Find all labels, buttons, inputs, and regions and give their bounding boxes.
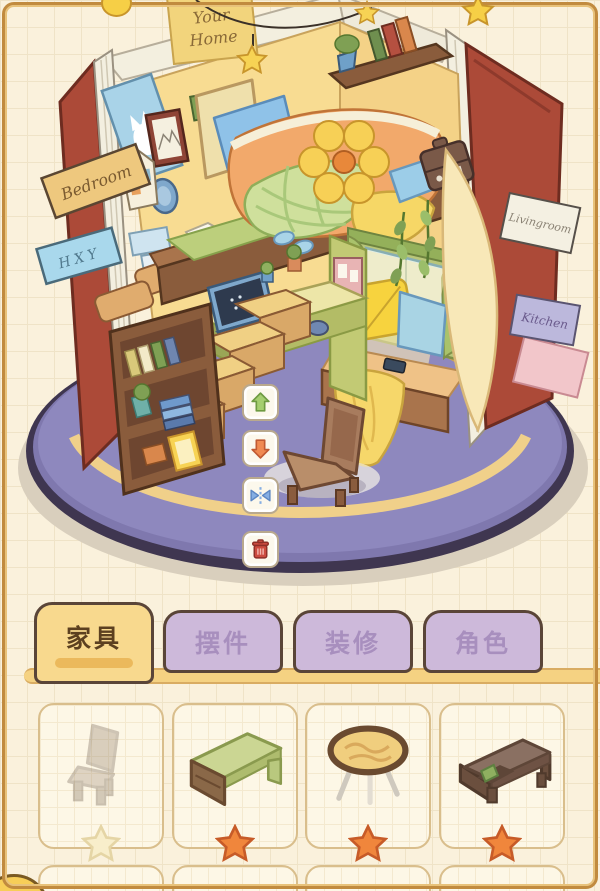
wooden-chair-thumbnail bbox=[40, 713, 162, 819]
tab-character-label: 角色 bbox=[455, 624, 511, 660]
bookshelf bbox=[110, 304, 224, 494]
tab-decoration[interactable]: 装修 bbox=[293, 610, 413, 673]
category-tab-bar: 家具 摆件 装修 角色 bbox=[0, 598, 600, 690]
inventory-card-row2-2[interactable] bbox=[172, 865, 298, 891]
game-screen: Your Home bbox=[0, 0, 600, 891]
round-table-thumbnail bbox=[307, 713, 429, 819]
arrow-up-icon bbox=[248, 390, 273, 415]
tab-active-underline bbox=[55, 658, 133, 668]
inventory-card-row2-4[interactable] bbox=[439, 865, 565, 891]
tab-furniture[interactable]: 家具 bbox=[34, 602, 154, 684]
tv-cabinet-thumbnail bbox=[441, 713, 563, 819]
inventory-card-wooden-chair[interactable] bbox=[38, 703, 164, 849]
raise-button[interactable] bbox=[242, 384, 279, 421]
frame-star-ornament bbox=[460, 0, 496, 28]
picture-frame bbox=[146, 109, 189, 166]
orange-star-badge bbox=[347, 824, 389, 864]
lower-button[interactable] bbox=[242, 430, 279, 467]
pale-star-badge bbox=[80, 824, 122, 864]
flip-button[interactable] bbox=[242, 477, 279, 514]
orange-star-badge bbox=[481, 824, 523, 864]
inventory-card-tv-cabinet[interactable] bbox=[439, 703, 565, 849]
orange-star-badge bbox=[214, 824, 256, 864]
room-scene[interactable]: Your Home bbox=[0, 0, 600, 600]
inventory-card-row2-3[interactable] bbox=[305, 865, 431, 891]
inventory-card-round-table[interactable] bbox=[305, 703, 431, 849]
tab-character[interactable]: 角色 bbox=[423, 610, 543, 673]
inventory-card-green-desk[interactable] bbox=[172, 703, 298, 849]
tab-ornaments-label: 摆件 bbox=[195, 624, 251, 660]
trash-icon bbox=[248, 537, 273, 562]
flip-horizontal-icon bbox=[248, 483, 273, 508]
arrow-down-icon bbox=[248, 436, 273, 461]
green-desk-thumbnail bbox=[174, 713, 296, 819]
delete-button[interactable] bbox=[242, 531, 279, 568]
inventory-card-row2-1[interactable] bbox=[38, 865, 164, 891]
tab-ornaments[interactable]: 摆件 bbox=[163, 610, 283, 673]
tab-furniture-label: 家具 bbox=[66, 619, 122, 655]
tab-decoration-label: 装修 bbox=[325, 624, 381, 660]
